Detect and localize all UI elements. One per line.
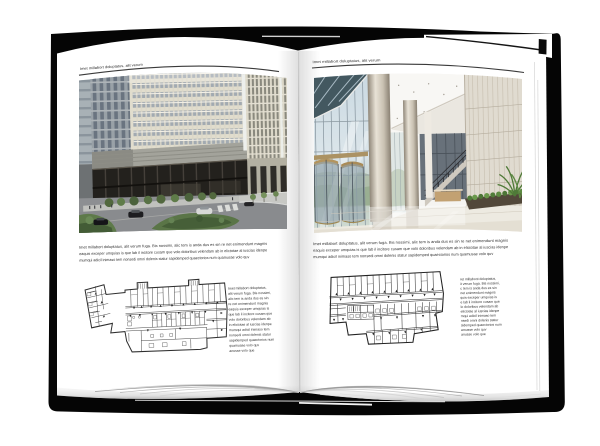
svg-text:quamusae volo quv: quamusae volo quv (229, 343, 259, 348)
svg-text:anusse volo que: anusse volo que (229, 348, 254, 353)
svg-text:anusse volo que: anusse volo que (461, 332, 486, 336)
